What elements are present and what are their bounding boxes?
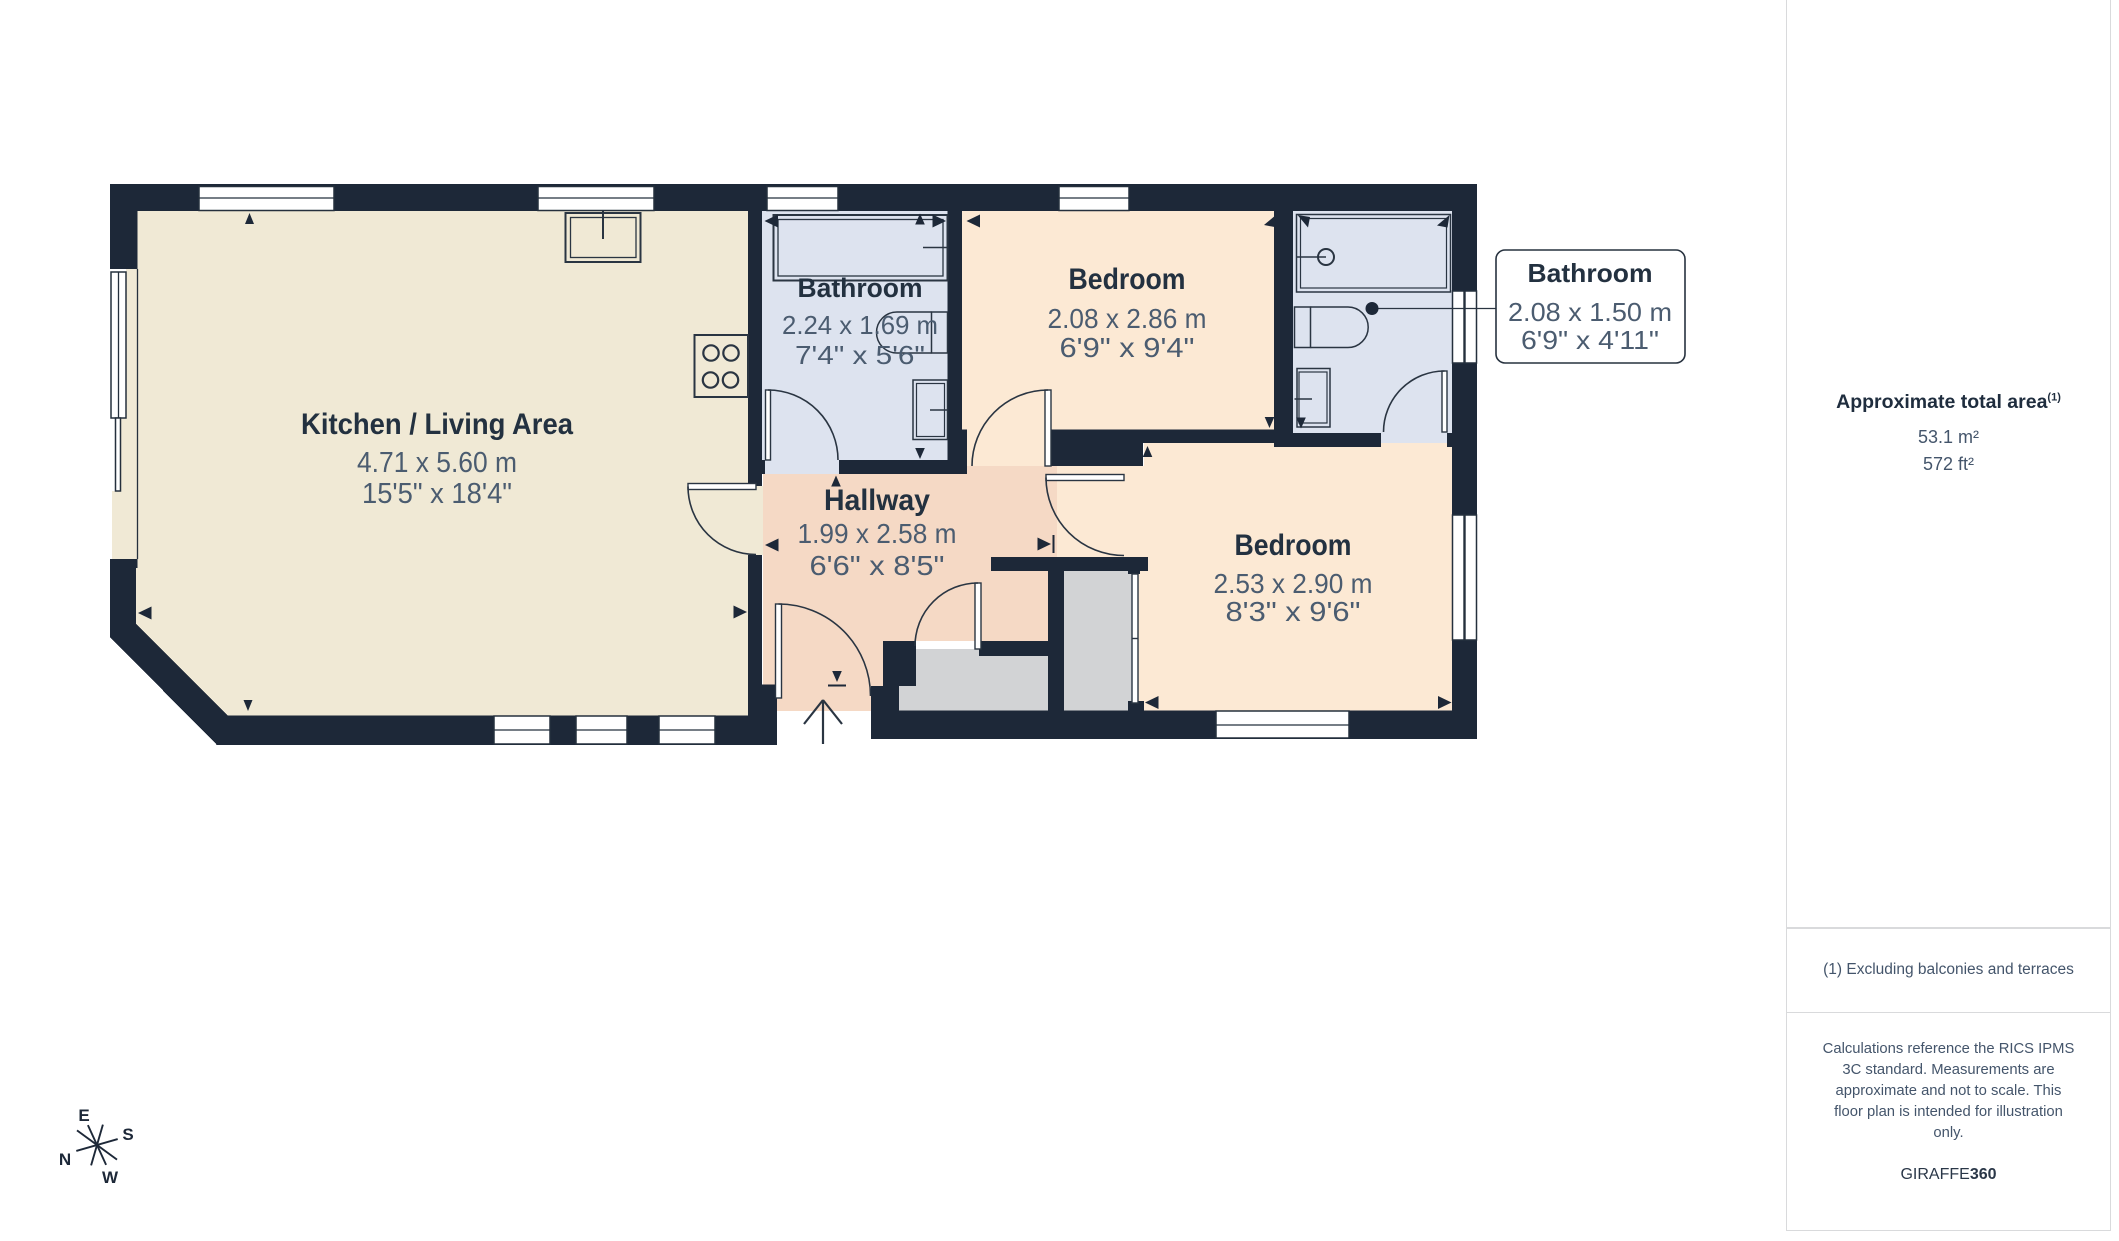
svg-text:Bedroom: Bedroom <box>1069 263 1186 296</box>
svg-text:6'9" x 4'11": 6'9" x 4'11" <box>1521 325 1659 355</box>
svg-text:2.08 x 2.86 m: 2.08 x 2.86 m <box>1048 303 1207 334</box>
svg-text:15'5" x 18'4": 15'5" x 18'4" <box>362 478 512 510</box>
svg-text:6'6" x 8'5": 6'6" x 8'5" <box>810 550 945 581</box>
svg-text:7'4" x 5'6": 7'4" x 5'6" <box>795 340 925 370</box>
svg-text:S: S <box>122 1125 133 1144</box>
svg-text:E: E <box>78 1106 89 1125</box>
svg-text:Kitchen / Living Area: Kitchen / Living Area <box>301 408 573 441</box>
svg-text:2.24 x 1.69 m: 2.24 x 1.69 m <box>782 310 938 340</box>
svg-text:4.71 x 5.60 m: 4.71 x 5.60 m <box>357 447 517 479</box>
svg-text:W: W <box>102 1168 119 1187</box>
svg-text:6'9" x 9'4": 6'9" x 9'4" <box>1060 332 1195 363</box>
svg-text:Bathroom: Bathroom <box>1528 258 1653 288</box>
svg-text:2.08 x 1.50 m: 2.08 x 1.50 m <box>1508 297 1672 327</box>
svg-text:Bathroom: Bathroom <box>798 273 923 303</box>
svg-text:1.99 x 2.58 m: 1.99 x 2.58 m <box>798 518 957 549</box>
svg-text:Hallway: Hallway <box>824 484 930 517</box>
svg-text:N: N <box>59 1150 71 1169</box>
svg-text:8'3" x 9'6": 8'3" x 9'6" <box>1226 596 1361 627</box>
svg-text:Bedroom: Bedroom <box>1235 529 1352 562</box>
svg-text:2.53 x 2.90 m: 2.53 x 2.90 m <box>1214 568 1373 599</box>
